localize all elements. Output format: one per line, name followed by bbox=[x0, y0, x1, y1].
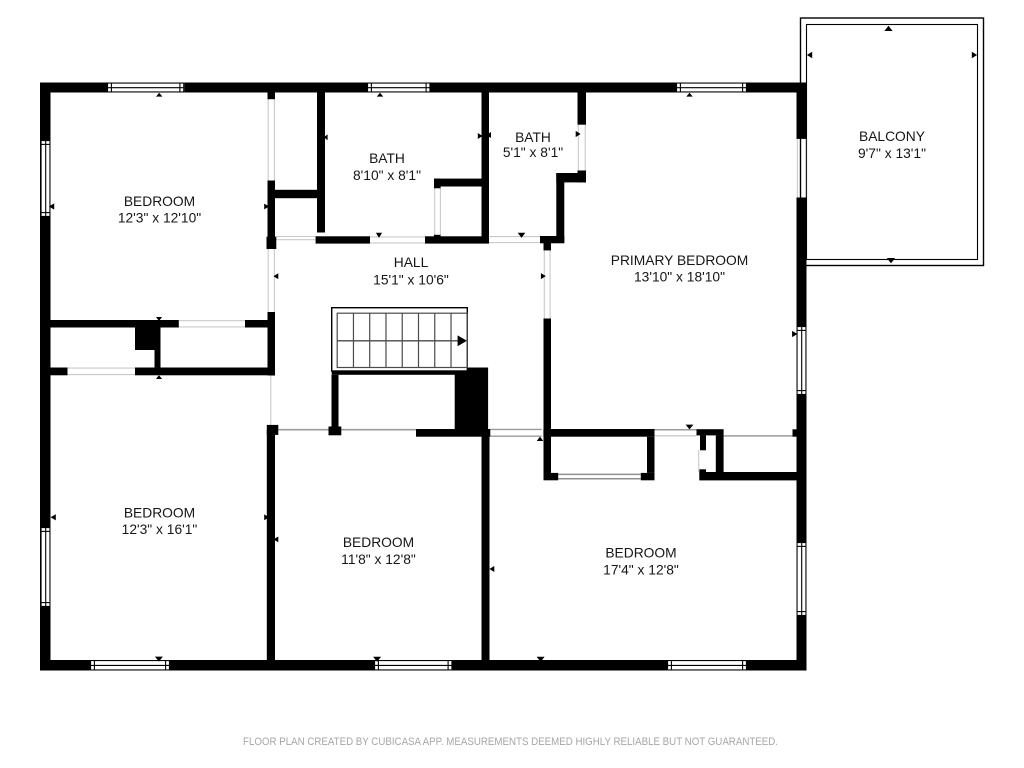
svg-text:17'4" x 12'8": 17'4" x 12'8" bbox=[603, 563, 679, 578]
svg-text:BEDROOM: BEDROOM bbox=[124, 505, 195, 520]
svg-text:HALL: HALL bbox=[394, 255, 429, 270]
svg-text:BEDROOM: BEDROOM bbox=[343, 535, 414, 550]
svg-text:5'1" x 8'1": 5'1" x 8'1" bbox=[503, 145, 563, 160]
svg-text:PRIMARY BEDROOM: PRIMARY BEDROOM bbox=[611, 253, 748, 268]
svg-text:BALCONY: BALCONY bbox=[859, 129, 925, 144]
svg-text:BATH: BATH bbox=[515, 130, 551, 145]
svg-text:12'3" x 16'1": 12'3" x 16'1" bbox=[122, 522, 198, 537]
svg-text:FLOOR PLAN CREATED BY CUBICASA: FLOOR PLAN CREATED BY CUBICASA APP. MEAS… bbox=[243, 736, 778, 748]
svg-text:BATH: BATH bbox=[369, 151, 405, 166]
svg-text:BEDROOM: BEDROOM bbox=[605, 546, 676, 561]
svg-text:13'10" x 18'10": 13'10" x 18'10" bbox=[634, 270, 725, 285]
svg-text:9'7" x 13'1": 9'7" x 13'1" bbox=[858, 146, 926, 161]
svg-text:BEDROOM: BEDROOM bbox=[124, 194, 195, 209]
svg-text:15'1" x 10'6": 15'1" x 10'6" bbox=[373, 273, 449, 288]
svg-text:8'10" x 8'1": 8'10" x 8'1" bbox=[353, 168, 421, 183]
svg-text:12'3" x 12'10": 12'3" x 12'10" bbox=[118, 211, 201, 226]
svg-text:11'8" x 12'8": 11'8" x 12'8" bbox=[341, 552, 416, 567]
